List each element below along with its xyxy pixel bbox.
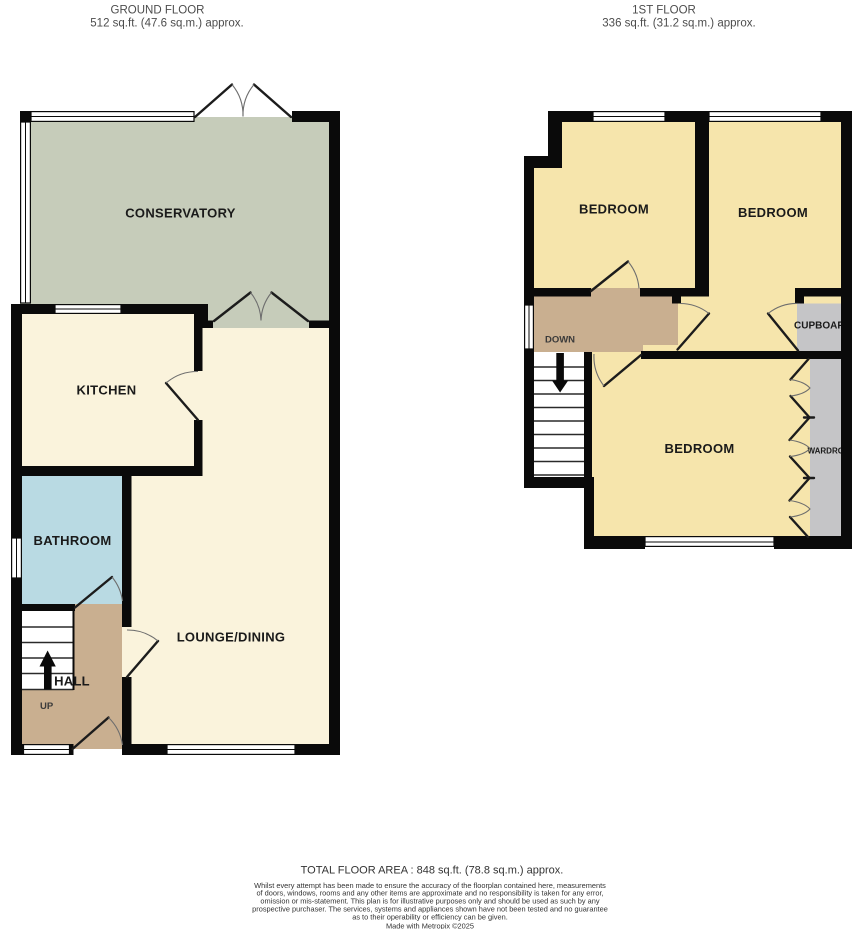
svg-text:BEDROOM: BEDROOM [579, 201, 649, 216]
svg-text:512 sq.ft. (47.6 sq.m.) approx: 512 sq.ft. (47.6 sq.m.) approx. [90, 17, 243, 29]
svg-text:336 sq.ft. (31.2 sq.m.) approx: 336 sq.ft. (31.2 sq.m.) approx. [602, 17, 755, 29]
svg-text:HALL: HALL [54, 674, 90, 689]
svg-text:DOWN: DOWN [545, 334, 575, 345]
svg-text:CONSERVATORY: CONSERVATORY [125, 206, 236, 221]
svg-text:BATHROOM: BATHROOM [34, 533, 112, 548]
svg-text:TOTAL FLOOR AREA : 848 sq.ft.: TOTAL FLOOR AREA : 848 sq.ft. (78.8 sq.m… [301, 865, 564, 877]
svg-text:GROUND FLOOR: GROUND FLOOR [111, 5, 205, 17]
svg-text:BEDROOM: BEDROOM [738, 205, 808, 220]
svg-text:BEDROOM: BEDROOM [665, 441, 735, 456]
svg-text:Made with Metropix ©2025: Made with Metropix ©2025 [386, 922, 474, 929]
svg-text:UP: UP [40, 701, 54, 712]
svg-text:LOUNGE/DINING: LOUNGE/DINING [177, 630, 286, 645]
svg-text:KITCHEN: KITCHEN [77, 383, 137, 398]
svg-text:as to their operability or eff: as to their operability or efficiency ca… [352, 913, 508, 922]
svg-text:1ST FLOOR: 1ST FLOOR [632, 5, 696, 17]
